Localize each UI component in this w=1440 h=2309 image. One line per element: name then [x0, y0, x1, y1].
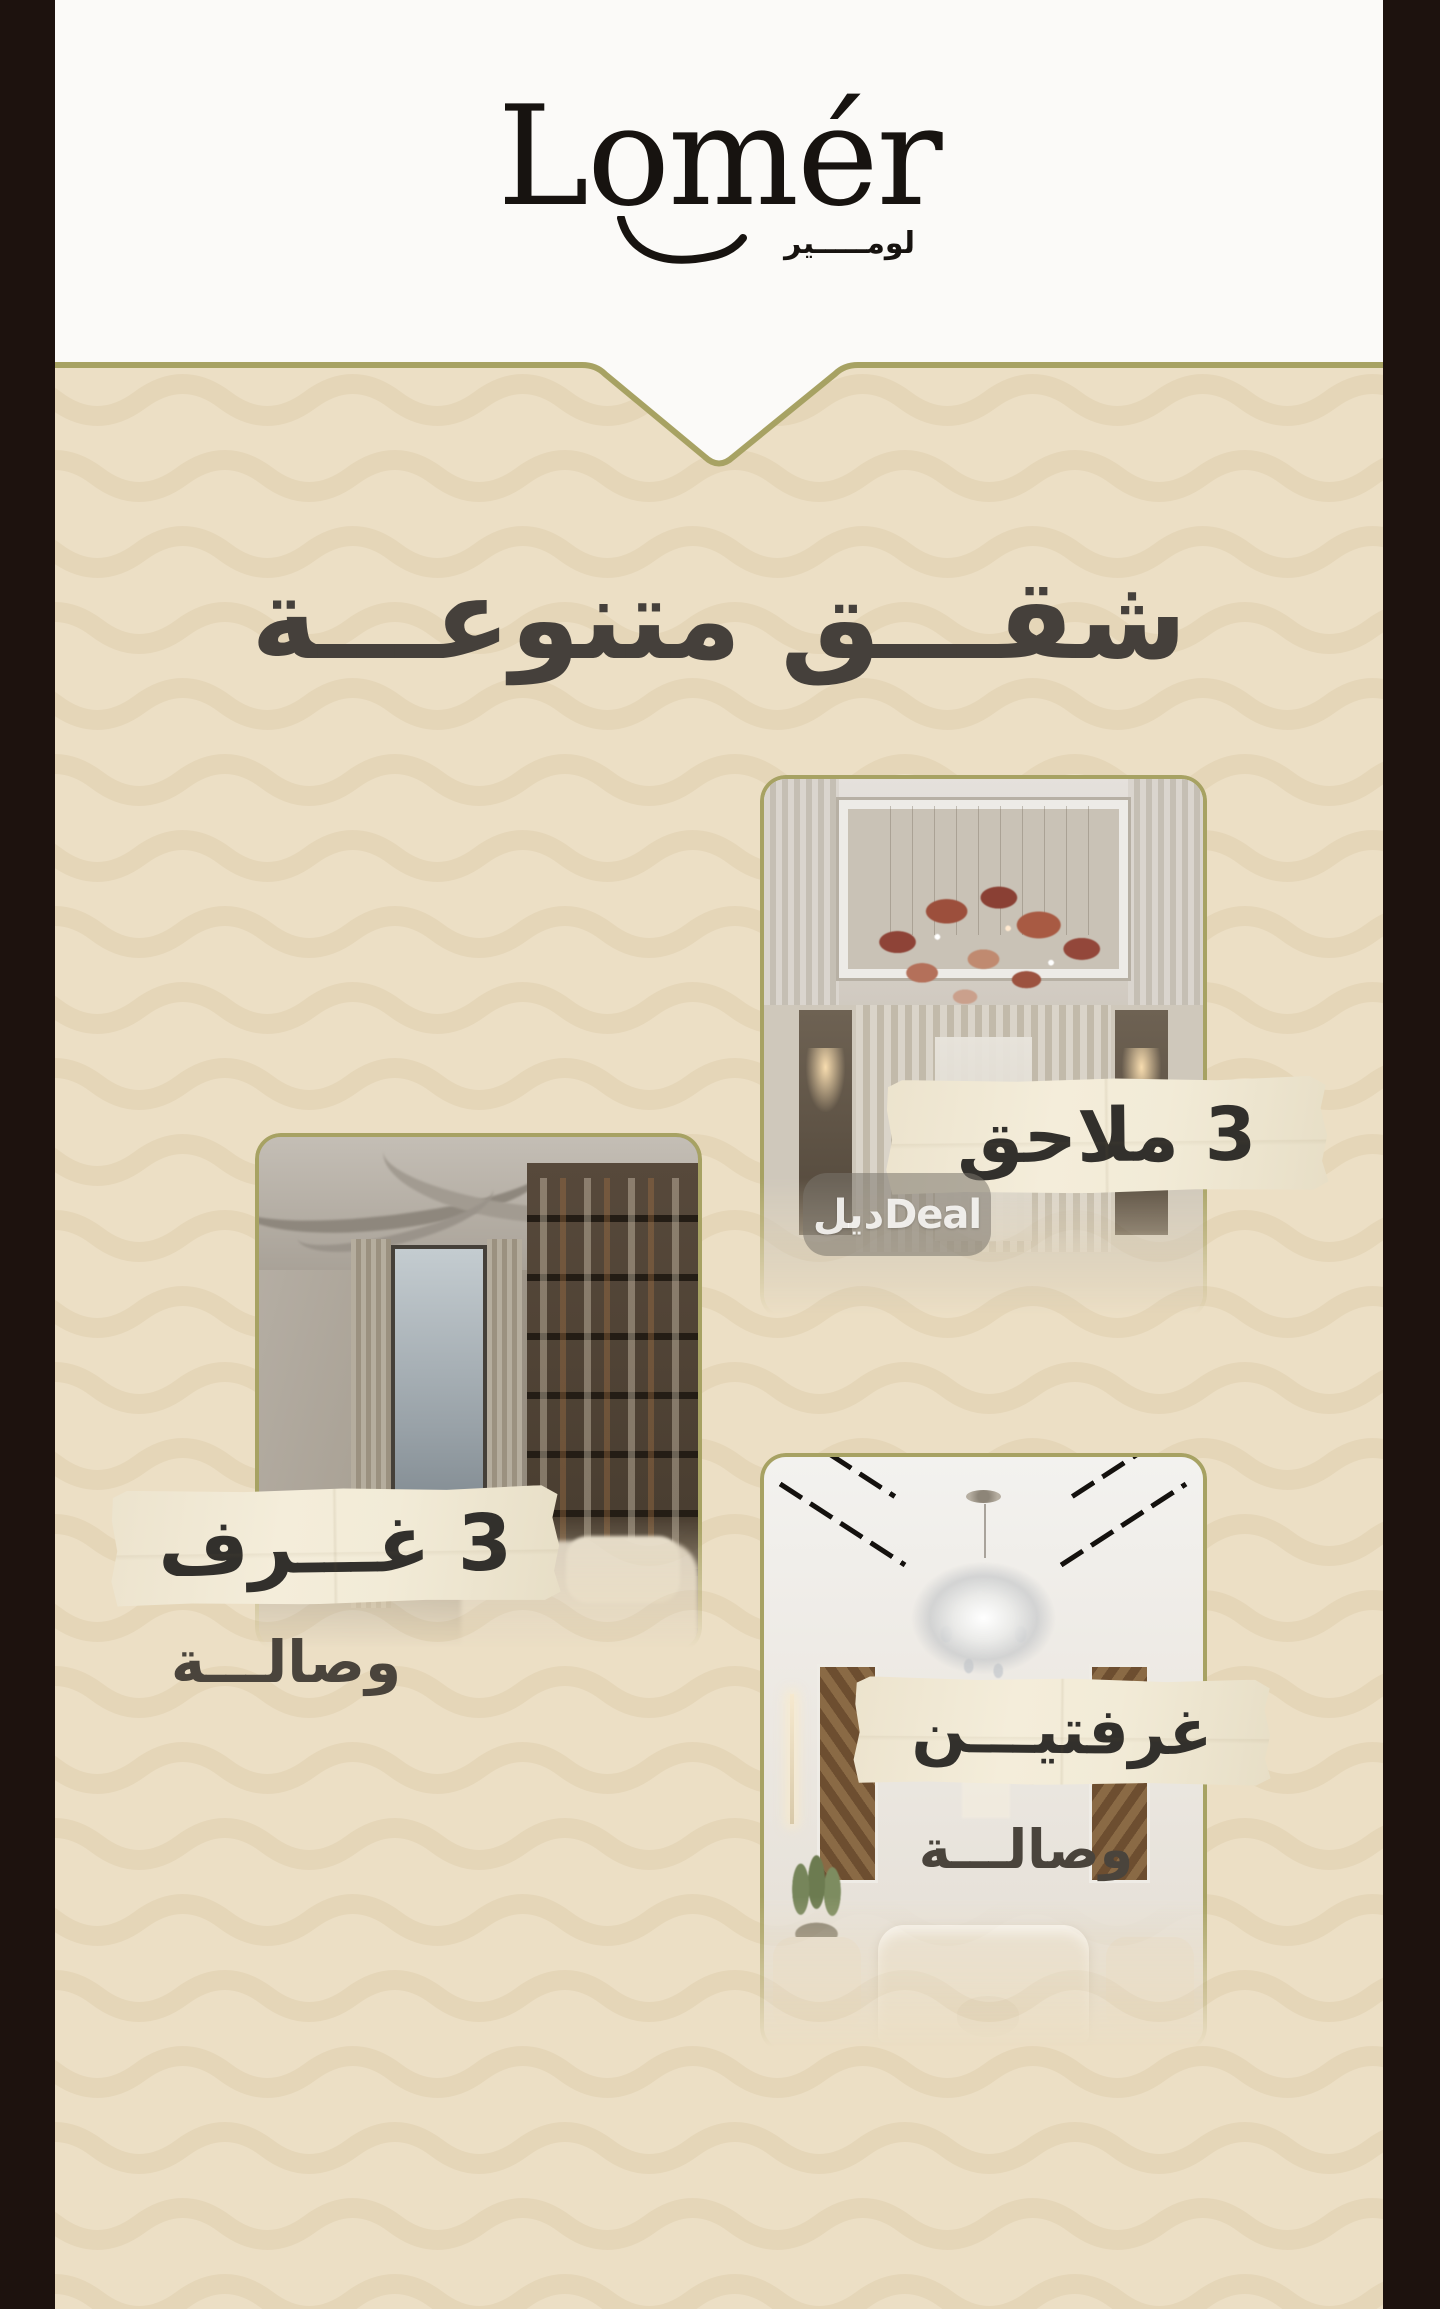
photo3-ceiling-vent	[966, 1490, 1001, 1503]
photo3-coffee-table	[957, 1996, 1018, 2037]
page-title: شقـــق متنوعـــة	[55, 555, 1383, 685]
brand-wordmark-text: Lomér	[497, 76, 940, 237]
photo1-ceiling-slats-left	[764, 779, 839, 1005]
brand-arabic-name: لومـــــير	[784, 226, 915, 261]
photo3-armchair-right	[1106, 1937, 1194, 2032]
banner-three-annexes-label: 3 ملاحق	[956, 1091, 1256, 1180]
right-letterbox-bar	[1383, 0, 1440, 2309]
banner-two-rooms: غرفتيـــن	[853, 1676, 1272, 1787]
logo-q-swash-icon	[615, 216, 765, 276]
banner-three-rooms-label: 3 غـــرف	[157, 1499, 512, 1594]
photo1-lamp-glow-left	[806, 1048, 846, 1112]
flyer-canvas: Lomér لومـــــير شقـــق متنوعـــة	[55, 0, 1383, 2309]
photo3-wall-sconce	[790, 1694, 794, 1824]
brand-logo: Lomér لومـــــير	[55, 88, 1383, 278]
photo1-ceiling-slats-right	[1128, 779, 1203, 1005]
photo2-pillow	[566, 1536, 680, 1603]
banner-three-rooms: 3 غـــرف	[109, 1485, 561, 1607]
sublabel-hall-two-rooms: وصالـــة	[870, 1818, 1182, 1881]
banner-two-rooms-label: غرفتيـــن	[911, 1693, 1213, 1770]
photo1-red-glass-chandelier	[830, 860, 1137, 1032]
deal-app-watermark: ديلDeal	[803, 1173, 991, 1256]
brand-wordmark: Lomér	[497, 88, 940, 226]
sublabel-hall-three-rooms: وصالـــة	[130, 1628, 442, 1696]
watermark-arabic: ديل	[813, 1195, 884, 1235]
poster-page: Lomér لومـــــير شقـــق متنوعـــة	[0, 0, 1440, 2309]
watermark-latin: Deal	[884, 1195, 981, 1235]
left-letterbox-bar	[0, 0, 55, 2309]
photo3-armchair-left	[773, 1937, 861, 2032]
